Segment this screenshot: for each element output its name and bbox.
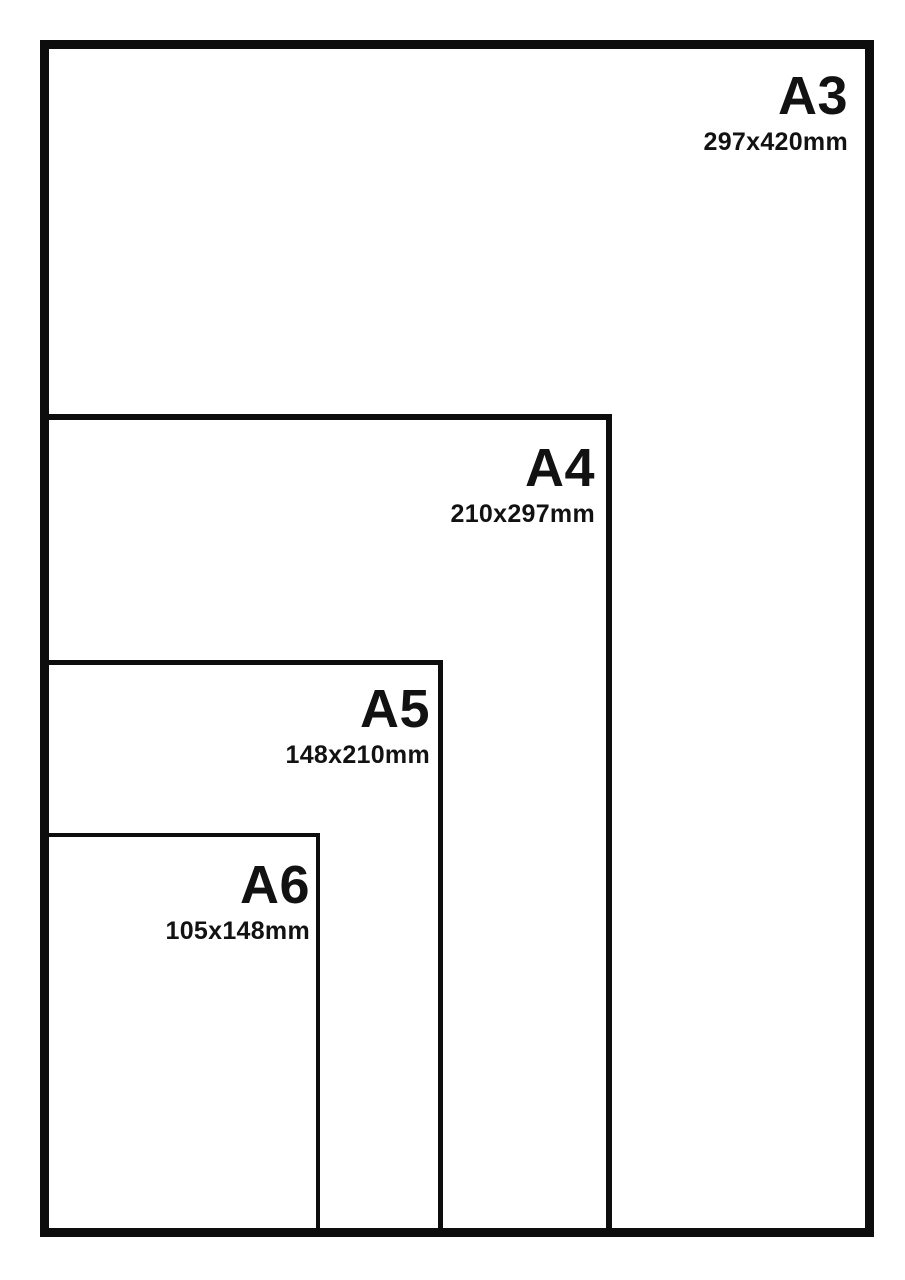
a6-dimensions-label: 105x148mm: [166, 919, 311, 944]
a6-label-group: A6 105x148mm: [166, 858, 311, 944]
a3-label-group: A3 297x420mm: [704, 69, 849, 155]
a5-dimensions-label: 148x210mm: [286, 743, 431, 768]
a4-label-group: A4 210x297mm: [451, 441, 596, 527]
a5-size-label: A5: [360, 682, 430, 736]
a4-size-label: A4: [525, 441, 595, 495]
a6-size-label: A6: [240, 858, 310, 912]
paper-size-diagram: A3 297x420mm A4 210x297mm A5 148x210mm A…: [0, 0, 905, 1280]
a5-label-group: A5 148x210mm: [286, 682, 431, 768]
a3-dimensions-label: 297x420mm: [704, 130, 849, 155]
a3-size-label: A3: [778, 69, 848, 123]
a6-rectangle: A6 105x148mm: [40, 833, 320, 1237]
a4-dimensions-label: 210x297mm: [451, 502, 596, 527]
